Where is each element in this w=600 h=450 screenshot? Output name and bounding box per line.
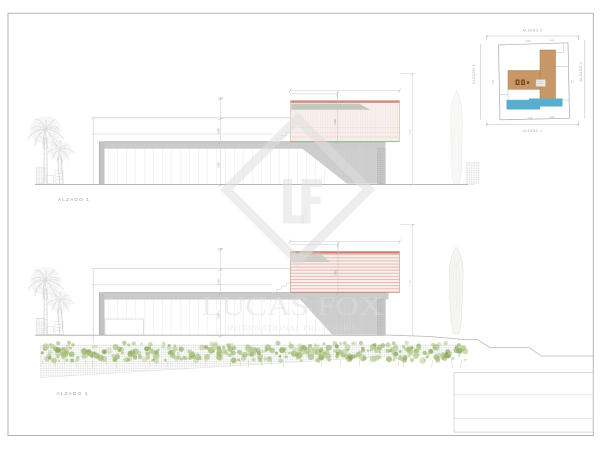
- svg-text:4.04: 4.04: [550, 41, 555, 43]
- svg-text:ALZADO 2: ALZADO 2: [579, 62, 583, 82]
- svg-text:3.90: 3.90: [333, 119, 337, 125]
- svg-text:2.06: 2.06: [526, 41, 531, 43]
- svg-text:1.50: 1.50: [493, 79, 495, 84]
- svg-text:7.04: 7.04: [528, 118, 533, 120]
- svg-text:6.15: 6.15: [408, 280, 412, 286]
- svg-text:ALZADO 1: ALZADO 1: [58, 197, 90, 203]
- svg-text:ALZADO 4: ALZADO 4: [472, 64, 476, 84]
- svg-text:LUCAS FOX: LUCAS FOX: [202, 291, 384, 321]
- svg-text:ALZADO 3: ALZADO 3: [523, 29, 543, 33]
- svg-text:3.55: 3.55: [216, 162, 220, 168]
- svg-text:2.80: 2.80: [216, 279, 220, 285]
- svg-text:3.90: 3.90: [334, 270, 338, 276]
- svg-text:ALZADO 1: ALZADO 1: [57, 391, 89, 397]
- svg-text:6.15: 6.15: [408, 129, 412, 135]
- svg-text:4.04: 4.04: [550, 117, 555, 119]
- svg-text:2.80: 2.80: [216, 128, 220, 134]
- svg-text:INTERNATIONAL PROPERTIES: INTERNATIONAL PROPERTIES: [227, 325, 357, 333]
- svg-text:ALZADO 1: ALZADO 1: [523, 129, 543, 133]
